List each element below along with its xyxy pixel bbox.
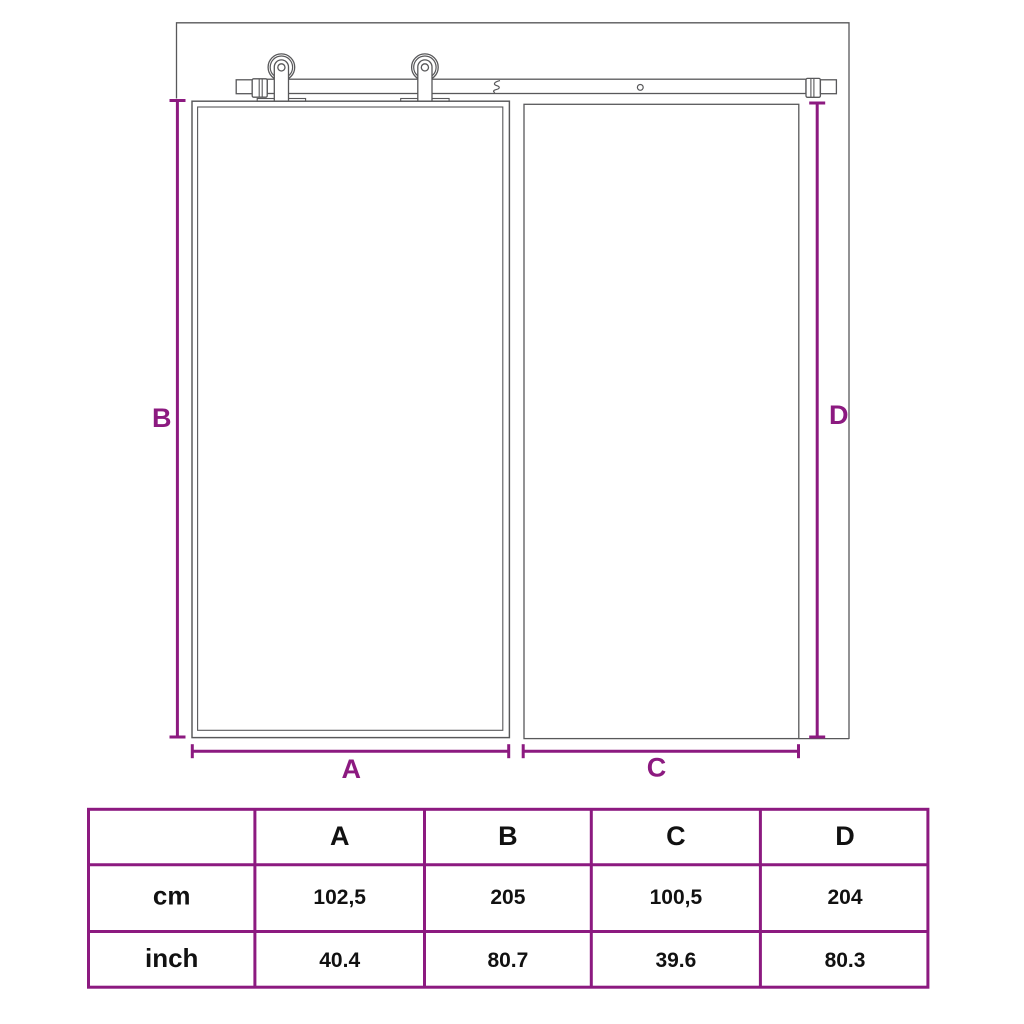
svg-text:A: A — [330, 821, 350, 851]
svg-text:100,5: 100,5 — [650, 886, 703, 909]
svg-text:A: A — [341, 754, 361, 784]
svg-text:D: D — [829, 400, 849, 430]
svg-text:B: B — [152, 403, 172, 433]
svg-text:B: B — [498, 821, 518, 851]
svg-text:cm: cm — [153, 880, 191, 910]
svg-text:inch: inch — [145, 943, 198, 973]
svg-text:205: 205 — [490, 886, 525, 909]
svg-text:102,5: 102,5 — [313, 886, 366, 909]
svg-text:80.7: 80.7 — [487, 949, 528, 972]
svg-text:D: D — [835, 821, 855, 851]
svg-text:80.3: 80.3 — [825, 949, 866, 972]
svg-text:C: C — [647, 753, 667, 783]
svg-text:39.6: 39.6 — [655, 949, 696, 972]
svg-text:204: 204 — [827, 886, 862, 909]
svg-text:C: C — [666, 821, 686, 851]
svg-text:40.4: 40.4 — [319, 949, 360, 972]
